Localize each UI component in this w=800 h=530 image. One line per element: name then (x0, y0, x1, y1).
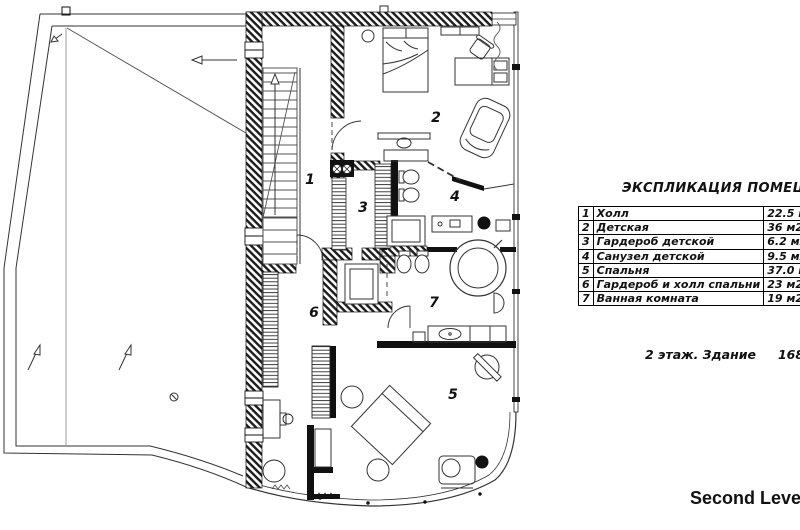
room-number: 7 (579, 292, 594, 306)
double-bed-icon (383, 28, 428, 92)
roof-terrace-area (4, 7, 246, 487)
table-row: 4 Санузел детской 9.5 м2 (579, 249, 800, 263)
room-label-1: 1 (305, 172, 315, 188)
room-label-5: 5 (448, 387, 458, 403)
room-area: 36 м2 (764, 221, 800, 235)
armchair-icon (439, 456, 475, 488)
room-label-6: 6 (309, 305, 319, 321)
table-row: 3 Гардероб детской 6.2 м2 (579, 235, 800, 249)
room-name: Гардероб и холл спальни (593, 277, 764, 291)
room-area: 6.2 м2 (764, 235, 800, 249)
room-name: Спальня (593, 263, 764, 277)
legend-title: ЭКСПЛИКАЦИЯ ПОМЕЩЕНИЙ (622, 181, 800, 196)
room-number: 6 (579, 277, 594, 291)
table-row: 2 Детская 36 м2 (579, 221, 800, 235)
room-label-7: 7 (429, 295, 439, 311)
room-area: 9.5 м2 (764, 249, 800, 263)
room-area: 23 м2 (764, 277, 800, 291)
room-number: 5 (579, 263, 594, 277)
shower-icon (387, 216, 425, 246)
cheval-mirror-icon (474, 354, 502, 382)
desk-icon (455, 58, 509, 85)
wardrobe-icon (263, 272, 278, 387)
desk-icon (263, 400, 293, 438)
column-icon (478, 217, 491, 230)
room-label-3: 3 (358, 200, 368, 216)
room-name: Ванная комната (593, 292, 764, 306)
room-label-2: 2 (431, 110, 441, 126)
room-area: 22.5 м2 (764, 207, 800, 221)
dressing-table-icon (378, 133, 430, 161)
room6-furniture (263, 272, 331, 482)
ceiling-lamp-icon (362, 30, 374, 42)
floor-summary: 2 этаж. Здание 168 м2 (645, 347, 800, 362)
cabinet-icon (496, 220, 510, 231)
floorplan-sheet: 1 2 3 4 5 6 7 ЭКСПЛИКАЦИЯ ПОМЕЩЕНИЙ 1 Хо… (0, 0, 800, 530)
room4-fixtures (387, 170, 510, 246)
room-name: Гардероб детской (593, 235, 764, 249)
cabinet-icon (315, 429, 331, 467)
room-name: Холл (593, 207, 764, 221)
room-name: Детская (593, 221, 764, 235)
room-number: 1 (579, 207, 594, 221)
room-number: 3 (579, 235, 594, 249)
slope-arrow-icon (28, 34, 237, 370)
table-row: 5 Спальня 37.0 м2 (579, 263, 800, 277)
round-bathtub-icon (450, 240, 506, 296)
room-number: 4 (579, 249, 594, 263)
bath-vanity-icon (413, 326, 506, 342)
room5-furniture (341, 354, 501, 488)
room-area: 37.0 м2 (764, 263, 800, 277)
room-name: Санузел детской (593, 249, 764, 263)
staircase (263, 68, 300, 264)
column-icon (476, 456, 489, 469)
chaise-longue-icon (457, 95, 513, 161)
pouf-icon (263, 460, 285, 482)
wall-shelf-icon (441, 27, 479, 35)
chair-icon (467, 34, 494, 61)
room-number: 2 (579, 221, 594, 235)
room2-furniture (362, 22, 513, 161)
floor-summary-text: 2 этаж. Здание (645, 347, 756, 362)
wardrobe-icon (312, 346, 330, 418)
table-row: 6 Гардероб и холл спальни 23 м2 (579, 277, 800, 291)
curtain-icon (494, 22, 500, 70)
shower-cabin-icon (345, 264, 378, 304)
pedestal-sink-icon (494, 293, 504, 313)
roof-column-icon (170, 393, 178, 401)
explication-table: 1 Холл 22.5 м2 2 Детская 36 м2 3 Гардеро… (578, 206, 800, 306)
floor-summary-area: 168 м2 (778, 347, 800, 362)
toilet-icon (399, 170, 419, 202)
room-label-4: 4 (449, 189, 460, 205)
level-title: Second Level (690, 488, 800, 509)
vanity-icon (432, 216, 472, 232)
table-row: 7 Ванная комната 19 м2 (579, 292, 800, 306)
table-row: 1 Холл 22.5 м2 (579, 207, 800, 221)
room-area: 19 м2 (764, 292, 800, 306)
nightstand-icon (367, 459, 389, 481)
nightstand-icon (341, 386, 363, 408)
